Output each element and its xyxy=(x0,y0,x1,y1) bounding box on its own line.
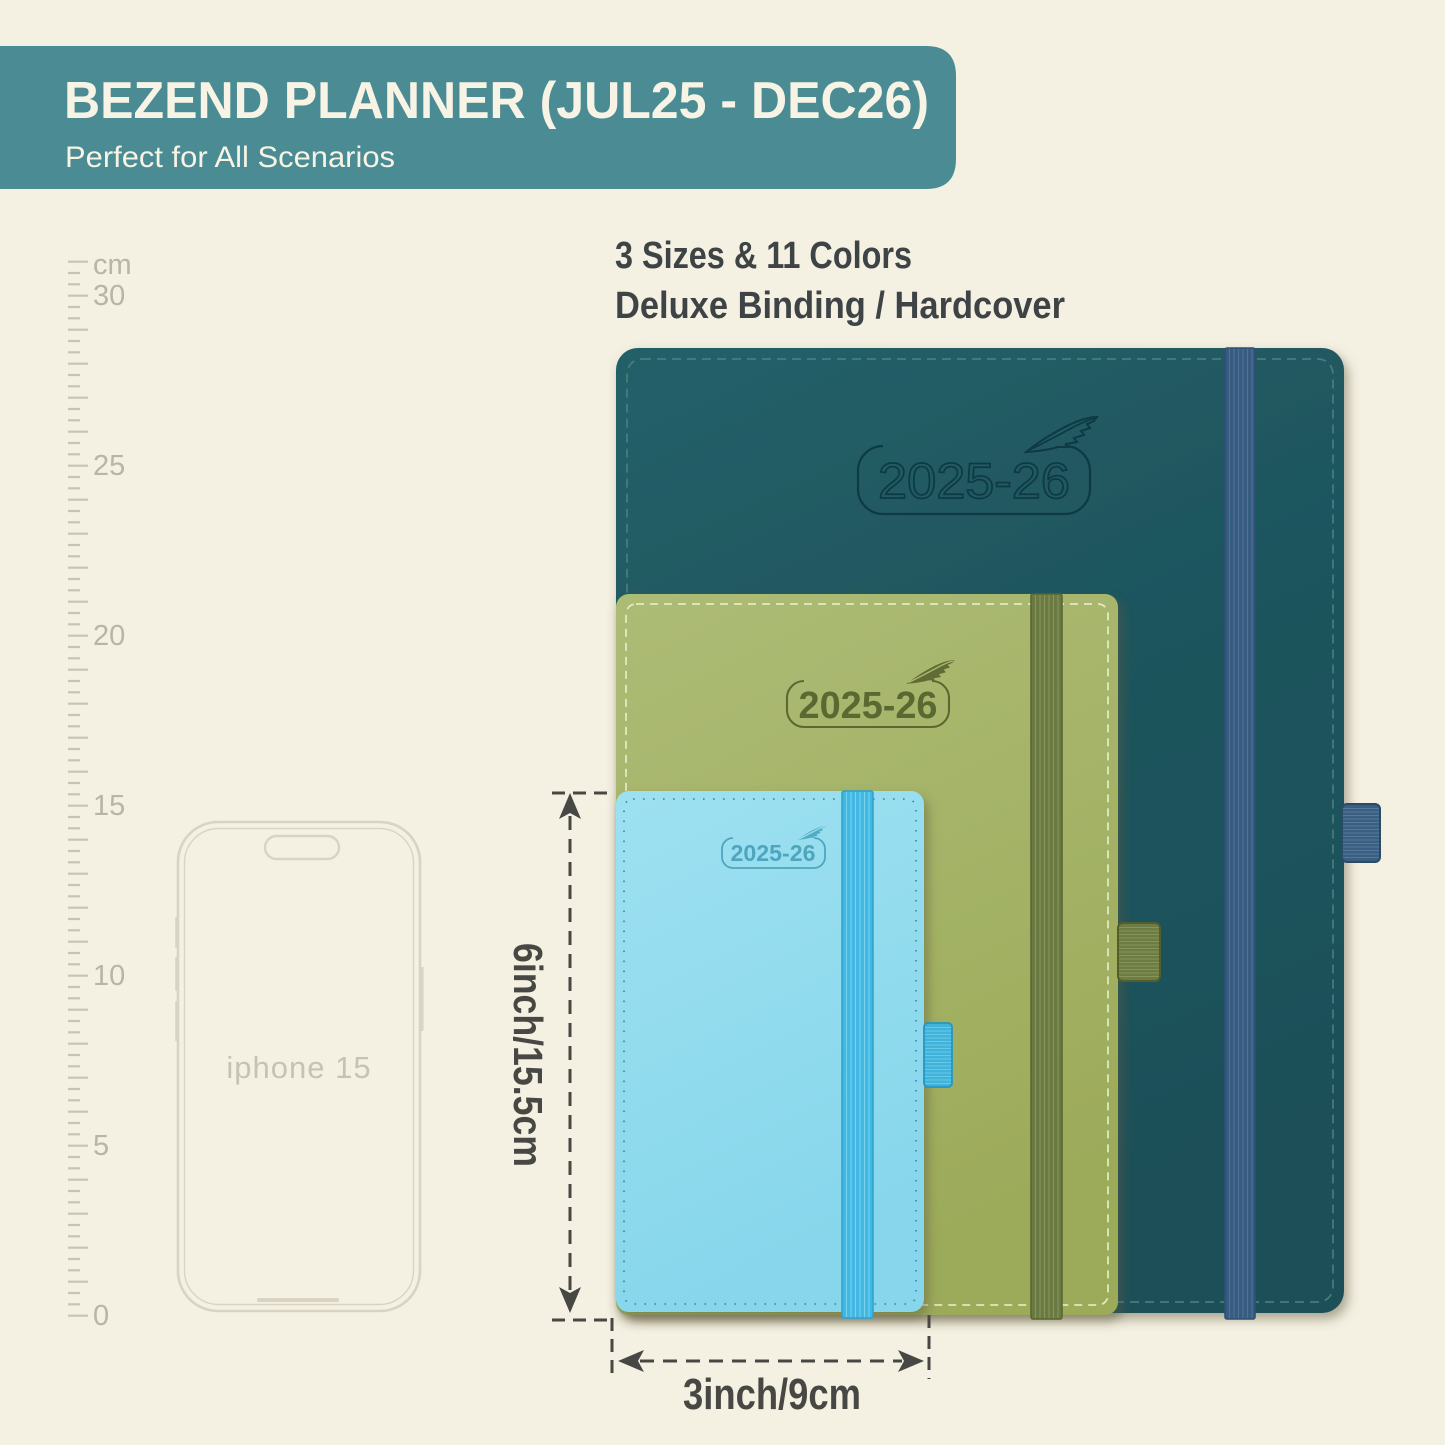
svg-text:iphone 15: iphone 15 xyxy=(226,1050,371,1085)
svg-text:6inch/15.5cm: 6inch/15.5cm xyxy=(505,943,551,1167)
svg-text:5: 5 xyxy=(93,1130,109,1162)
svg-text:Deluxe Binding / Hardcover: Deluxe Binding / Hardcover xyxy=(615,285,1065,327)
svg-text:0: 0 xyxy=(93,1300,109,1332)
svg-text:30: 30 xyxy=(93,280,125,312)
svg-text:25: 25 xyxy=(93,450,125,482)
svg-text:Perfect for All Scenarios: Perfect for All Scenarios xyxy=(65,141,395,174)
svg-text:2025-26: 2025-26 xyxy=(799,685,938,727)
svg-text:3 Sizes & 11 Colors: 3 Sizes & 11 Colors xyxy=(615,235,912,277)
svg-text:2025-26: 2025-26 xyxy=(731,840,816,866)
svg-text:15: 15 xyxy=(93,790,125,822)
svg-text:BEZEND PLANNER (JUL25 - DEC26): BEZEND PLANNER (JUL25 - DEC26) xyxy=(64,72,929,130)
svg-text:2025-26: 2025-26 xyxy=(878,453,1070,509)
svg-text:cm: cm xyxy=(93,249,132,281)
svg-text:10: 10 xyxy=(93,960,125,992)
svg-text:20: 20 xyxy=(93,620,125,652)
svg-text:3inch/9cm: 3inch/9cm xyxy=(683,1370,861,1419)
